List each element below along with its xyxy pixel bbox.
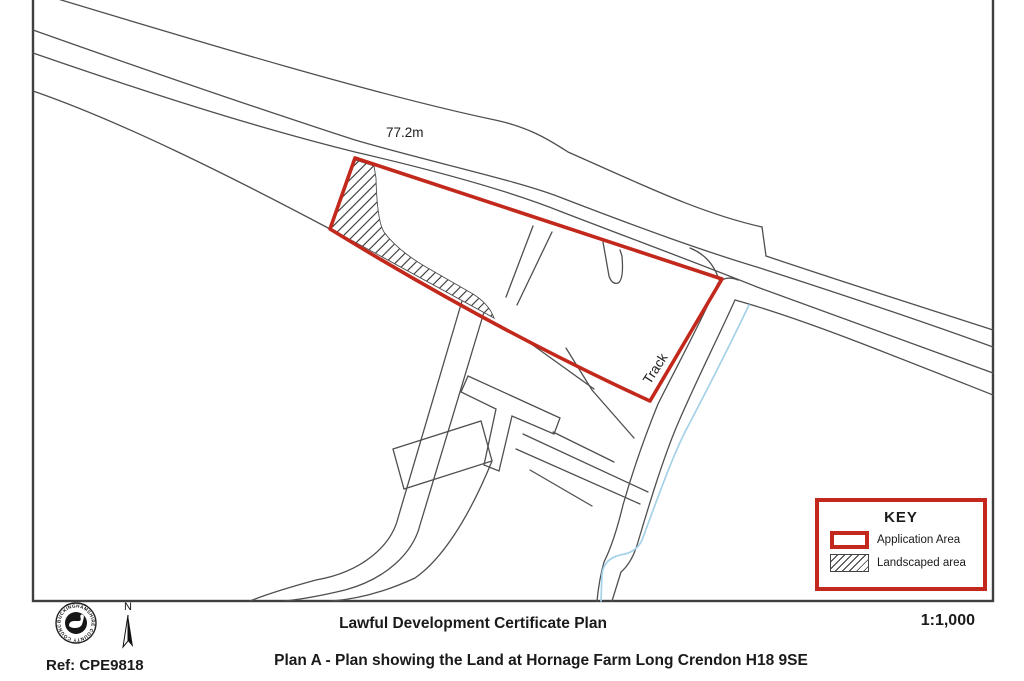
key-label-application-area: Application Area <box>877 534 960 546</box>
field-boundary-west <box>33 91 330 229</box>
barn-outline <box>393 421 492 489</box>
key-label-landscaped-area: Landscaped area <box>877 557 966 569</box>
road-edge-north-continuation <box>766 256 993 330</box>
key-row-landscaped-area: Landscaped area <box>830 554 983 572</box>
key-row-application-area: Application Area <box>830 531 983 549</box>
track-east-edge <box>612 300 735 601</box>
north-arrow-icon: N <box>114 597 142 651</box>
plan-subtitle: Plan A - Plan showing the Land at Hornag… <box>191 652 891 670</box>
plan-title: Lawful Development Certificate Plan <box>173 615 773 633</box>
reference-number: Ref: CPE9818 <box>46 657 144 674</box>
field-stub <box>762 227 766 256</box>
north-label: N <box>124 601 132 613</box>
spot-height-label: 77.2m <box>386 125 424 140</box>
track-lines <box>597 283 735 601</box>
plan-page: 77.2m Track KEY Application Area Landsca… <box>0 0 1024 681</box>
yard-line <box>530 470 592 506</box>
yard-wedge-line <box>517 232 552 305</box>
map-key: KEY Application Area Landscaped area <box>815 498 987 591</box>
scale-label: 1:1,000 <box>875 612 975 630</box>
landscaped-area-swatch <box>830 554 869 572</box>
road-edge-south <box>33 53 993 373</box>
yard-lane <box>516 449 640 504</box>
application-area-swatch <box>830 531 869 549</box>
track-label: Track <box>640 350 671 386</box>
landscaped-area-hatch <box>331 160 494 318</box>
road-edge-mid <box>33 30 993 347</box>
gate-funnel <box>603 242 623 283</box>
yard-wedge-line <box>506 226 533 297</box>
road-verge-line <box>735 300 993 395</box>
road-lines <box>33 0 993 395</box>
north-arrow-light-half <box>123 615 128 647</box>
north-arrow-dark-half <box>128 615 133 647</box>
yard-lane <box>523 434 648 492</box>
yard-line <box>553 432 614 462</box>
council-seal-icon: BUCKINGHAMSHIRE COUNTY COUNCIL <box>54 601 98 645</box>
track-west-edge <box>597 283 718 601</box>
key-title: KEY <box>819 509 983 526</box>
stream-line <box>601 305 749 601</box>
yard-boundary <box>566 348 634 438</box>
road-edge-north <box>48 0 762 227</box>
